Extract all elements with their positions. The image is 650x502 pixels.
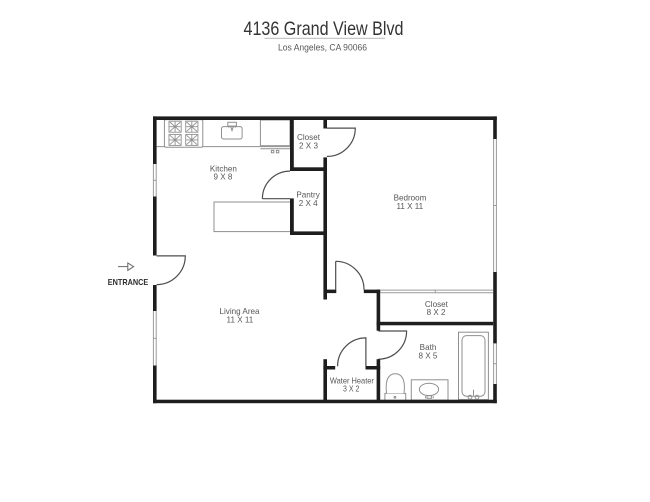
svg-text:9 X 8: 9 X 8 <box>213 173 232 182</box>
svg-text:ENTRANCE: ENTRANCE <box>108 277 149 287</box>
svg-text:8 X 2: 8 X 2 <box>427 308 446 317</box>
svg-text:11 X 11: 11 X 11 <box>227 315 254 324</box>
svg-text:3 X 2: 3 X 2 <box>343 385 360 394</box>
svg-text:2 X 3: 2 X 3 <box>299 142 318 151</box>
svg-text:Los Angeles, CA 90066: Los Angeles, CA 90066 <box>278 43 367 53</box>
svg-text:4136 Grand View Blvd: 4136 Grand View Blvd <box>244 18 404 40</box>
svg-text:11 X 11: 11 X 11 <box>396 202 423 211</box>
svg-text:2 X 4: 2 X 4 <box>299 199 318 208</box>
svg-text:8 X 5: 8 X 5 <box>418 351 437 360</box>
